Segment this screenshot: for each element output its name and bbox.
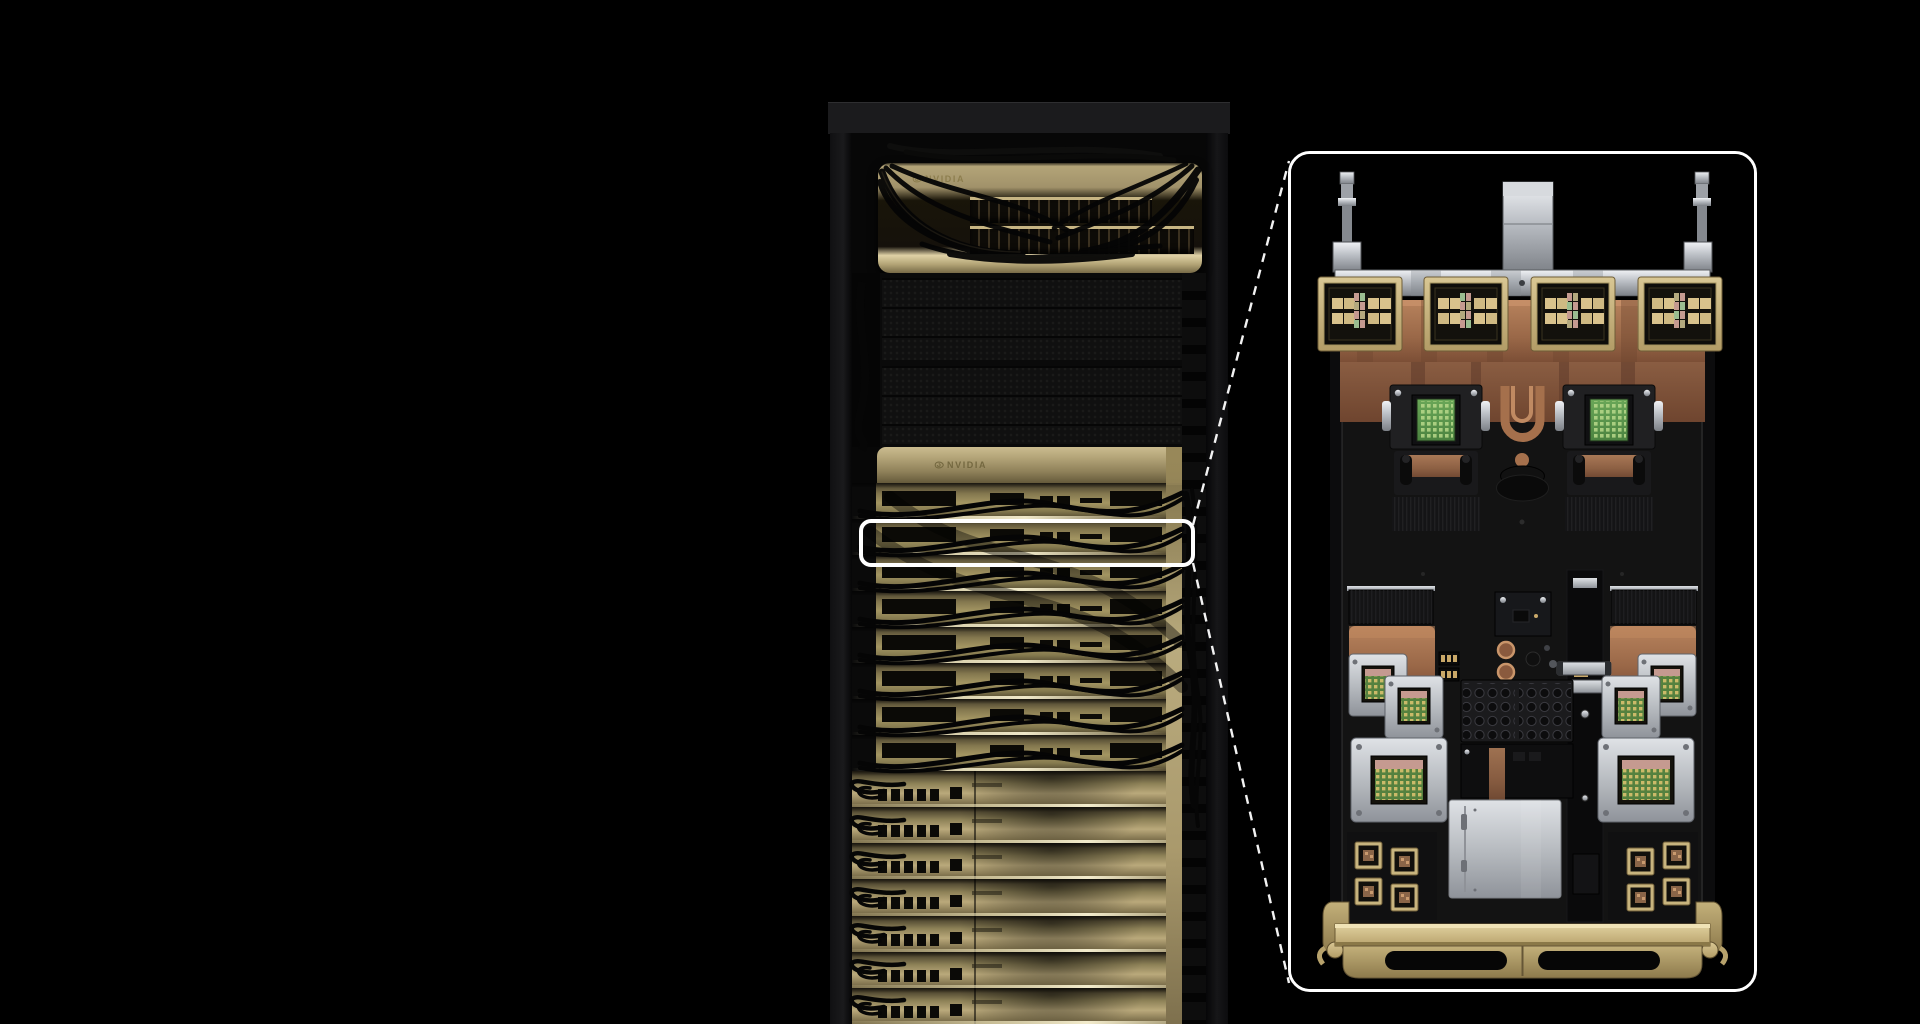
fin-bracket-right bbox=[1610, 586, 1698, 624]
cold-plate-assembly-left bbox=[1382, 385, 1490, 531]
blanking-panel bbox=[882, 278, 1202, 360]
compute-tray-row bbox=[852, 916, 1166, 952]
scene: NVIDIA NVIDIA bbox=[0, 0, 1920, 1024]
rack-top-cap bbox=[828, 102, 1230, 134]
nvidia-logo: NVIDIA bbox=[911, 174, 965, 184]
switch-tray-row bbox=[852, 483, 1166, 519]
switch-tray-row bbox=[852, 591, 1166, 627]
fin-bracket-left bbox=[1347, 586, 1435, 624]
blanking-panel-section bbox=[852, 273, 1206, 447]
handle-cutout bbox=[1538, 951, 1660, 970]
cold-plate-assembly-right bbox=[1555, 385, 1663, 531]
nic-module-stack-right bbox=[1598, 654, 1696, 822]
callout-highlight-box bbox=[859, 519, 1195, 567]
compute-tray-row bbox=[852, 988, 1166, 1024]
nvidia-eye-icon bbox=[911, 175, 922, 183]
gpu-package bbox=[1318, 277, 1402, 351]
gpu-package bbox=[1424, 277, 1508, 351]
gpu-package bbox=[1638, 277, 1722, 351]
switch-tray-row bbox=[852, 699, 1166, 735]
switch-brand-label: NVIDIA bbox=[925, 174, 965, 184]
chiplet-cluster-right bbox=[1608, 832, 1698, 920]
center-riser-block bbox=[1503, 182, 1553, 274]
nic-module-stack-left bbox=[1349, 654, 1447, 822]
tray-detail-render bbox=[1291, 154, 1754, 989]
cable-channel-right bbox=[1182, 273, 1206, 1024]
capacitor-banks bbox=[1461, 680, 1573, 742]
switch-tray-row bbox=[852, 627, 1166, 663]
compute-brand-label: NVIDIA bbox=[947, 460, 987, 470]
nvidia-logo: NVIDIA bbox=[933, 460, 987, 470]
chiplet-cluster-left bbox=[1347, 832, 1437, 920]
compute-tray-row bbox=[852, 843, 1166, 879]
rack-frame-left bbox=[830, 133, 852, 1024]
rack-frame-right bbox=[1206, 133, 1228, 1024]
compute-tray-stack bbox=[852, 771, 1166, 1024]
compute-tray-row bbox=[852, 952, 1166, 988]
gpu-package bbox=[1531, 277, 1615, 351]
blanking-panel bbox=[882, 366, 1202, 444]
compute-tray-row bbox=[852, 879, 1166, 915]
switch-tray-row bbox=[852, 735, 1166, 771]
switch-port-row bbox=[970, 226, 1194, 254]
switch-port-row bbox=[970, 197, 1152, 223]
compute-tray-row bbox=[852, 807, 1166, 843]
handle-cutout bbox=[1385, 951, 1507, 970]
nvidia-eye-icon bbox=[933, 461, 944, 469]
compute-shelf-header: NVIDIA bbox=[877, 447, 1200, 485]
network-switch-unit: NVIDIA bbox=[878, 163, 1202, 273]
cable-channel-left bbox=[852, 273, 880, 447]
ssd-cover-plate bbox=[1449, 800, 1561, 898]
tray-detail-panel bbox=[1288, 151, 1757, 992]
compute-tray-row bbox=[852, 771, 1166, 807]
vrm-block bbox=[1461, 744, 1573, 804]
switch-tray-row bbox=[852, 663, 1166, 699]
